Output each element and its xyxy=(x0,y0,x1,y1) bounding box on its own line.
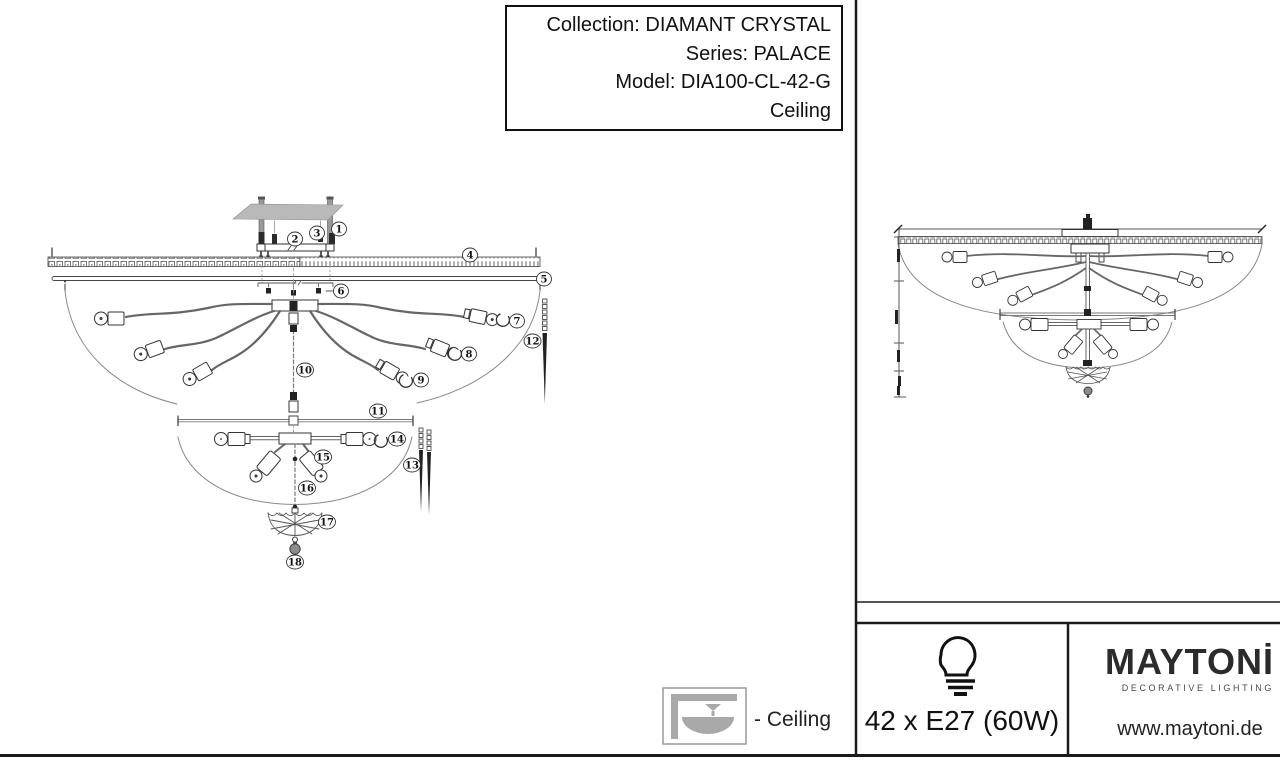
svg-text:4: 4 xyxy=(467,251,474,262)
svg-text:13: 13 xyxy=(405,461,419,472)
model-line: Model: DIA100-CL-42-G xyxy=(507,68,831,97)
svg-text:9: 9 xyxy=(418,376,425,387)
assembled-top-bolt xyxy=(1083,218,1092,229)
part-label-12: 12 xyxy=(524,334,541,348)
light-bulb-icon xyxy=(940,638,975,694)
lower-hub xyxy=(215,425,388,447)
part-label-16: 16 xyxy=(299,481,316,495)
svg-text:8: 8 xyxy=(466,350,473,361)
part-label-5: 5 xyxy=(537,272,552,286)
part-label-15: 15 xyxy=(315,450,332,464)
svg-text:17: 17 xyxy=(320,518,334,529)
part-label-11: 11 xyxy=(370,404,387,418)
svg-text:11: 11 xyxy=(371,407,385,418)
svg-text:7: 7 xyxy=(514,317,521,328)
center-rod-upper xyxy=(289,313,298,412)
part-label-17: 17 xyxy=(319,515,336,529)
dimension-marks xyxy=(895,249,901,395)
part-label-1: 1 xyxy=(332,222,347,236)
svg-text:3: 3 xyxy=(314,229,321,240)
assembled-view-diagram xyxy=(894,214,1266,398)
icicle-crystals xyxy=(419,428,431,515)
assembled-hub xyxy=(1071,244,1109,313)
svg-text:6: 6 xyxy=(338,287,345,298)
svg-text:1: 1 xyxy=(336,225,343,236)
assembled-tier-bar xyxy=(1000,309,1175,320)
mount-type-line: Ceiling xyxy=(507,97,831,126)
side-crystal-strand xyxy=(543,299,548,404)
part-label-8: 8 xyxy=(462,347,477,361)
brand-block: MAYTONİ DECORATIVE LIGHTING xyxy=(1068,642,1274,693)
ceiling-legend-label: - Ceiling xyxy=(754,708,831,732)
lamp-spec-text: 42 x E27 (60W) xyxy=(856,705,1068,737)
center-rod-lower xyxy=(293,444,298,509)
collection-line: Collection: DIAMANT CRYSTAL xyxy=(507,11,831,40)
part-label-18: 18 xyxy=(287,555,304,569)
assembled-crystal-band xyxy=(898,237,1262,244)
svg-text:18: 18 xyxy=(288,558,302,569)
part-label-2: 2 xyxy=(288,232,303,246)
part-label-9: 9 xyxy=(414,373,429,387)
svg-text:12: 12 xyxy=(526,337,540,348)
spec-sheet-page: 1 2 3 4 5 6 7 8 9 10 11 12 13 14 15 16 1… xyxy=(0,0,1280,761)
svg-text:5: 5 xyxy=(541,275,548,286)
part-label-14: 14 xyxy=(389,432,406,446)
svg-text:14: 14 xyxy=(390,435,404,446)
ceiling-mount-icon xyxy=(663,688,746,744)
part-label-4: 4 xyxy=(463,248,478,262)
left-sockets xyxy=(95,312,213,388)
assembled-lower-hub xyxy=(1020,319,1159,331)
svg-text:10: 10 xyxy=(298,366,312,377)
rim-band xyxy=(52,277,538,281)
part-number-labels: 1 2 3 4 5 6 7 8 9 10 11 12 13 14 15 16 1… xyxy=(287,222,552,569)
part-label-10: 10 xyxy=(297,363,314,377)
part-label-7: 7 xyxy=(510,314,525,328)
upper-hub xyxy=(272,268,318,311)
svg-text:2: 2 xyxy=(292,235,299,246)
assembled-mount-plate xyxy=(1062,230,1118,237)
assembled-sockets xyxy=(942,252,1233,308)
upper-bowl-outline xyxy=(64,281,541,405)
height-dimension-line xyxy=(894,229,906,397)
ceiling-plate xyxy=(233,204,343,220)
svg-text:16: 16 xyxy=(300,484,314,495)
maytoni-logo: MAYTONİ xyxy=(1068,642,1274,682)
right-sockets xyxy=(374,307,509,387)
assembled-angled-sockets xyxy=(1059,329,1118,359)
part-label-3: 3 xyxy=(310,226,325,240)
svg-text:15: 15 xyxy=(316,453,330,464)
series-line: Series: PALACE xyxy=(507,40,831,69)
part-label-13: 13 xyxy=(404,458,421,472)
product-info-box: Collection: DIAMANT CRYSTAL Series: PALA… xyxy=(505,5,843,131)
brand-website: www.maytoni.de xyxy=(1090,718,1280,741)
brand-tagline: DECORATIVE LIGHTING xyxy=(1068,683,1274,693)
crystal-basket xyxy=(268,508,322,542)
part-label-6: 6 xyxy=(334,284,349,298)
